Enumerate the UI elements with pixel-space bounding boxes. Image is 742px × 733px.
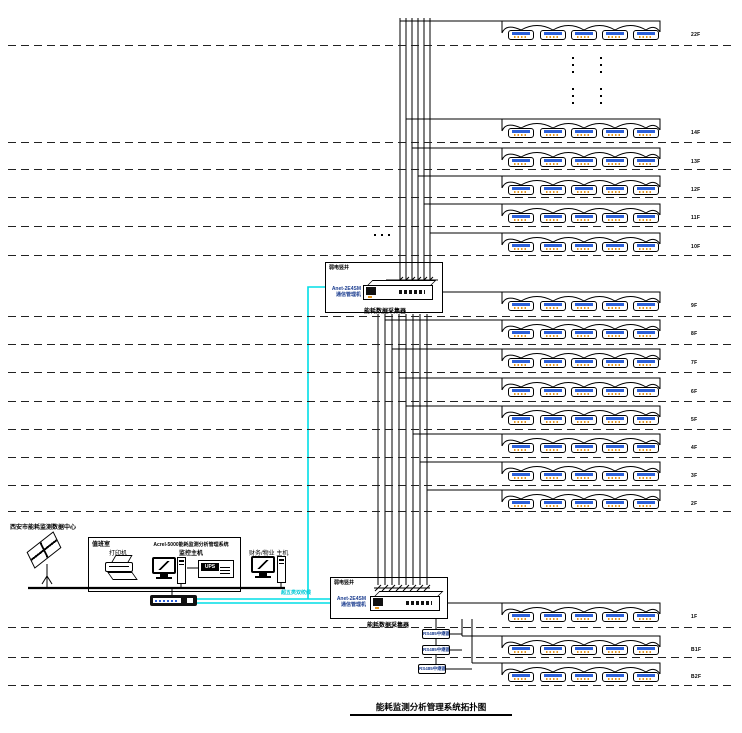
- meter-display: [575, 303, 593, 306]
- energy-meter-icon: [602, 213, 628, 223]
- meter-display: [637, 32, 655, 35]
- energy-meter-icon: [602, 672, 628, 682]
- meter-display: [637, 159, 655, 162]
- meter-buttons: [608, 421, 622, 423]
- omitted-floors-dots: [600, 88, 602, 104]
- floor-separator: [8, 142, 735, 143]
- energy-meter-icon: [633, 329, 659, 339]
- diagram-title: 能耗监测分析管理系统拓扑图: [350, 701, 512, 716]
- ups-icon: UPS: [198, 560, 234, 578]
- meter-buttons: [546, 134, 560, 136]
- energy-meter-icon: [540, 213, 566, 223]
- floor-label: 11F: [691, 215, 700, 221]
- meter-buttons: [608, 364, 622, 366]
- energy-meter-icon: [508, 612, 534, 622]
- energy-meter-icon: [633, 499, 659, 509]
- floor-separator: [8, 226, 735, 227]
- meter-buttons: [577, 191, 591, 193]
- meter-buttons: [608, 678, 622, 680]
- floor-label: 5F: [691, 417, 697, 423]
- device-type: 通信管理机: [336, 292, 361, 298]
- energy-meter-icon: [571, 301, 597, 311]
- meter-buttons: [577, 421, 591, 423]
- energy-meter-icon: [633, 185, 659, 195]
- finance-host-tower-icon: [277, 556, 286, 583]
- meter-display: [637, 360, 655, 363]
- energy-meter-icon: [540, 471, 566, 481]
- meter-buttons: [639, 307, 653, 309]
- printer-body: [105, 562, 133, 572]
- energy-meter-icon: [571, 358, 597, 368]
- monitor-base: [255, 576, 271, 578]
- energy-meter-icon: [508, 645, 534, 655]
- meter-display: [575, 130, 593, 133]
- meter-buttons: [639, 421, 653, 423]
- meter-display: [606, 187, 624, 190]
- meter-display: [512, 360, 530, 363]
- meter-buttons: [577, 134, 591, 136]
- meter-buttons: [546, 477, 560, 479]
- meter-buttons: [546, 307, 560, 309]
- meter-display: [575, 331, 593, 334]
- meter-display: [575, 473, 593, 476]
- upper-collector-room-label: 弱电竖井: [329, 264, 349, 271]
- meter-display: [637, 445, 655, 448]
- meter-buttons: [639, 364, 653, 366]
- meter-display: [575, 244, 593, 247]
- energy-meter-icon: [633, 157, 659, 167]
- energy-meter-icon: [508, 415, 534, 425]
- meter-display: [606, 445, 624, 448]
- energy-meter-icon: [540, 612, 566, 622]
- energy-meter-icon: [633, 301, 659, 311]
- meter-buttons: [514, 364, 528, 366]
- floor-separator: [8, 657, 735, 658]
- meter-display: [637, 244, 655, 247]
- floor-label: 14F: [691, 130, 701, 136]
- floor-separator: [8, 485, 735, 486]
- topology-diagram: 弱电竖井 Anet-2E4SM 通信管理机 能耗数据采集器 西安市能耗监测数据中…: [0, 0, 742, 733]
- meter-buttons: [514, 191, 528, 193]
- meter-display: [544, 215, 562, 218]
- meter-buttons: [577, 393, 591, 395]
- energy-meter-icon: [633, 645, 659, 655]
- energy-meter-icon: [571, 157, 597, 167]
- meter-buttons: [514, 219, 528, 221]
- meter-buttons: [546, 163, 560, 165]
- meter-display: [606, 360, 624, 363]
- meter-buttons: [514, 449, 528, 451]
- energy-meter-icon: [633, 443, 659, 453]
- floor-label: 3F: [691, 473, 697, 479]
- meter-buttons: [577, 248, 591, 250]
- floor-label: B2F: [691, 674, 701, 680]
- meter-display: [606, 473, 624, 476]
- gateway-led: [375, 607, 379, 609]
- meter-buttons: [639, 449, 653, 451]
- energy-meter-icon: [602, 185, 628, 195]
- meter-display: [575, 215, 593, 218]
- meter-buttons: [546, 505, 560, 507]
- energy-meter-icon: [602, 30, 628, 40]
- device-type: 通信管理机: [341, 602, 366, 608]
- energy-meter-icon: [540, 387, 566, 397]
- upper-collector-caption: 能耗数据采集器: [343, 306, 427, 315]
- meter-display: [512, 244, 530, 247]
- meter-display: [637, 331, 655, 334]
- meter-buttons: [608, 618, 622, 620]
- meter-display: [512, 614, 530, 617]
- floor-separator: [8, 197, 735, 198]
- energy-meter-icon: [633, 387, 659, 397]
- energy-meter-icon: [508, 672, 534, 682]
- meter-buttons: [514, 36, 528, 38]
- floor-separator: [8, 316, 735, 317]
- energy-meter-icon: [571, 242, 597, 252]
- energy-meter-icon: [540, 415, 566, 425]
- lower-collector-room-label: 弱电竖井: [334, 579, 354, 586]
- meter-display: [606, 32, 624, 35]
- meter-buttons: [577, 36, 591, 38]
- energy-meter-icon: [571, 185, 597, 195]
- ethernet-switch-icon: [150, 595, 197, 606]
- meter-display: [512, 389, 530, 392]
- floor-separator: [8, 511, 735, 512]
- meter-display: [512, 445, 530, 448]
- meter-buttons: [514, 134, 528, 136]
- meter-buttons: [514, 307, 528, 309]
- energy-meter-icon: [540, 30, 566, 40]
- energy-meter-icon: [508, 329, 534, 339]
- meter-display: [512, 473, 530, 476]
- energy-meter-icon: [633, 128, 659, 138]
- monitoring-host-monitor-icon: [152, 557, 176, 574]
- floor-separator: [8, 685, 735, 686]
- energy-meter-icon: [633, 242, 659, 252]
- energy-meter-icon: [508, 213, 534, 223]
- meter-display: [544, 331, 562, 334]
- meter-buttons: [546, 618, 560, 620]
- meter-buttons: [608, 248, 622, 250]
- upper-collector-device-label: Anet-2E4SM 通信管理机: [325, 286, 361, 298]
- floor-separator: [8, 457, 735, 458]
- floor-label: 22F: [691, 32, 701, 38]
- floor-separator: [8, 627, 735, 628]
- gateway-led: [368, 296, 372, 298]
- meter-display: [544, 674, 562, 677]
- floor-label: 10F: [691, 244, 701, 250]
- omitted-floors-dots: [572, 88, 574, 104]
- meter-display: [544, 130, 562, 133]
- meter-display: [512, 331, 530, 334]
- meter-display: [606, 614, 624, 617]
- energy-meter-icon: [571, 213, 597, 223]
- meter-display: [544, 360, 562, 363]
- meter-display: [575, 614, 593, 617]
- meter-buttons: [546, 421, 560, 423]
- meter-buttons: [546, 191, 560, 193]
- meter-display: [606, 159, 624, 162]
- switch-uplink: [187, 598, 193, 603]
- energy-meter-icon: [602, 301, 628, 311]
- gateway-display: [366, 287, 376, 295]
- meter-display: [575, 389, 593, 392]
- meter-buttons: [577, 618, 591, 620]
- meter-display: [512, 501, 530, 504]
- floor-label: 6F: [691, 389, 697, 395]
- energy-meter-icon: [633, 30, 659, 40]
- meter-buttons: [546, 393, 560, 395]
- meter-display: [637, 389, 655, 392]
- meter-buttons: [639, 651, 653, 653]
- energy-meter-icon: [540, 329, 566, 339]
- energy-meter-icon: [602, 387, 628, 397]
- meter-buttons: [639, 618, 653, 620]
- energy-meter-icon: [571, 387, 597, 397]
- meter-display: [637, 303, 655, 306]
- meter-display: [606, 130, 624, 133]
- network-cable-label: 超五类双绞线: [281, 589, 311, 596]
- meter-display: [512, 674, 530, 677]
- meter-buttons: [608, 477, 622, 479]
- ups-label: UPS: [201, 563, 219, 571]
- floor-label: B1F: [691, 647, 701, 653]
- meter-buttons: [608, 163, 622, 165]
- meter-display: [544, 389, 562, 392]
- meter-buttons: [546, 651, 560, 653]
- floor-separator: [8, 45, 735, 46]
- energy-meter-icon: [602, 612, 628, 622]
- floor-separator: [8, 429, 735, 430]
- meter-display: [512, 647, 530, 650]
- omitted-floors-dots: [600, 57, 602, 73]
- meter-display: [637, 187, 655, 190]
- meter-buttons: [639, 134, 653, 136]
- meter-display: [637, 417, 655, 420]
- meter-display: [544, 303, 562, 306]
- switch-ports: [153, 598, 181, 603]
- meter-buttons: [608, 307, 622, 309]
- meter-display: [606, 389, 624, 392]
- energy-meter-icon: [571, 443, 597, 453]
- meter-buttons: [608, 134, 622, 136]
- energy-meter-icon: [633, 213, 659, 223]
- meter-display: [544, 159, 562, 162]
- floor-label: 1F: [691, 614, 697, 620]
- meter-buttons: [546, 678, 560, 680]
- meter-buttons: [514, 421, 528, 423]
- meter-display: [544, 501, 562, 504]
- meter-display: [637, 215, 655, 218]
- meter-display: [575, 674, 593, 677]
- floor-label: 13F: [691, 159, 701, 165]
- meter-display: [606, 331, 624, 334]
- energy-meter-icon: [571, 128, 597, 138]
- meter-buttons: [639, 335, 653, 337]
- meter-buttons: [514, 651, 528, 653]
- meter-display: [606, 244, 624, 247]
- meter-buttons: [514, 248, 528, 250]
- meter-display: [637, 130, 655, 133]
- meter-buttons: [514, 505, 528, 507]
- energy-meter-icon: [508, 128, 534, 138]
- energy-meter-icon: [508, 185, 534, 195]
- floor-label: 12F: [691, 187, 701, 193]
- energy-meter-icon: [602, 157, 628, 167]
- meter-buttons: [514, 678, 528, 680]
- gateway-display: [373, 598, 383, 606]
- energy-meter-icon: [540, 185, 566, 195]
- floor-separator: [8, 169, 735, 170]
- meter-display: [606, 647, 624, 650]
- energy-meter-icon: [602, 415, 628, 425]
- meter-buttons: [577, 651, 591, 653]
- floor-separator: [8, 255, 735, 256]
- meter-display: [575, 32, 593, 35]
- meter-display: [512, 32, 530, 35]
- meter-display: [512, 159, 530, 162]
- energy-meter-icon: [633, 612, 659, 622]
- meter-display: [544, 647, 562, 650]
- energy-meter-icon: [540, 672, 566, 682]
- gateway-ports: [406, 601, 432, 605]
- meter-display: [575, 360, 593, 363]
- meter-buttons: [639, 477, 653, 479]
- omitted-floors-dots: [572, 57, 574, 73]
- printer-tray: [107, 572, 138, 580]
- meter-buttons: [514, 335, 528, 337]
- data-gateway-icon: [363, 285, 433, 300]
- rs485-repeater: RS485中继器: [422, 629, 450, 639]
- meter-display: [575, 647, 593, 650]
- energy-meter-icon: [571, 499, 597, 509]
- rs485-repeater: RS485中继器: [422, 645, 450, 655]
- meter-display: [512, 303, 530, 306]
- gateway-ports: [399, 290, 425, 294]
- energy-meter-icon: [602, 443, 628, 453]
- energy-meter-icon: [571, 645, 597, 655]
- meter-display: [544, 445, 562, 448]
- energy-meter-icon: [571, 471, 597, 481]
- energy-meter-icon: [633, 415, 659, 425]
- omitted-risers-dots: [374, 234, 390, 236]
- energy-meter-icon: [508, 30, 534, 40]
- meter-display: [606, 501, 624, 504]
- energy-meter-icon: [571, 415, 597, 425]
- floor-label: 9F: [691, 303, 697, 309]
- energy-meter-icon: [602, 329, 628, 339]
- energy-meter-icon: [602, 471, 628, 481]
- meter-buttons: [639, 678, 653, 680]
- energy-meter-icon: [571, 672, 597, 682]
- energy-meter-icon: [508, 358, 534, 368]
- meter-buttons: [546, 364, 560, 366]
- meter-display: [544, 187, 562, 190]
- energy-meter-icon: [633, 471, 659, 481]
- energy-meter-icon: [540, 242, 566, 252]
- city-data-center-label: 西安市能耗监测数据中心: [10, 522, 76, 531]
- energy-meter-icon: [602, 499, 628, 509]
- meter-buttons: [514, 163, 528, 165]
- meter-display: [512, 417, 530, 420]
- meter-buttons: [639, 36, 653, 38]
- meter-buttons: [577, 364, 591, 366]
- meter-buttons: [608, 191, 622, 193]
- printer-icon: [103, 555, 137, 582]
- floor-separator: [8, 344, 735, 345]
- meter-display: [606, 215, 624, 218]
- meter-display: [575, 417, 593, 420]
- meter-buttons: [608, 651, 622, 653]
- meter-buttons: [577, 335, 591, 337]
- meter-buttons: [546, 219, 560, 221]
- duty-room-label: 值班室: [92, 539, 110, 548]
- meter-display: [512, 187, 530, 190]
- meter-display: [606, 674, 624, 677]
- energy-meter-icon: [508, 301, 534, 311]
- energy-meter-icon: [540, 157, 566, 167]
- meter-buttons: [577, 678, 591, 680]
- energy-meter-icon: [540, 128, 566, 138]
- meter-buttons: [577, 477, 591, 479]
- meter-display: [637, 614, 655, 617]
- meter-buttons: [546, 36, 560, 38]
- floor-label: 2F: [691, 501, 697, 507]
- energy-meter-icon: [571, 612, 597, 622]
- meter-display: [606, 303, 624, 306]
- meter-buttons: [639, 163, 653, 165]
- energy-meter-icon: [571, 329, 597, 339]
- lower-collector-device-label: Anet-2E4SM 通信管理机: [330, 596, 366, 608]
- energy-meter-icon: [602, 128, 628, 138]
- meter-display: [575, 159, 593, 162]
- monitoring-host-tower-icon: [177, 557, 186, 584]
- floor-label: 7F: [691, 360, 697, 366]
- meter-buttons: [577, 219, 591, 221]
- energy-meter-icon: [540, 645, 566, 655]
- meter-display: [544, 614, 562, 617]
- meter-display: [575, 445, 593, 448]
- meter-buttons: [639, 248, 653, 250]
- energy-meter-icon: [602, 358, 628, 368]
- meter-buttons: [546, 335, 560, 337]
- meter-buttons: [546, 449, 560, 451]
- energy-meter-icon: [508, 471, 534, 481]
- floor-separator: [8, 372, 735, 373]
- meter-buttons: [639, 393, 653, 395]
- energy-meter-icon: [540, 358, 566, 368]
- data-gateway-icon: [370, 596, 440, 611]
- meter-buttons: [514, 393, 528, 395]
- meter-display: [637, 674, 655, 677]
- meter-display: [637, 501, 655, 504]
- energy-meter-icon: [540, 499, 566, 509]
- energy-meter-icon: [602, 645, 628, 655]
- finance-host-monitor-icon: [251, 556, 275, 573]
- meter-buttons: [608, 36, 622, 38]
- meter-display: [637, 473, 655, 476]
- energy-meter-icon: [633, 358, 659, 368]
- meter-display: [544, 473, 562, 476]
- meter-display: [575, 501, 593, 504]
- meter-display: [544, 417, 562, 420]
- energy-meter-icon: [508, 242, 534, 252]
- energy-meter-icon: [571, 30, 597, 40]
- floor-label: 4F: [691, 445, 697, 451]
- energy-meter-icon: [508, 157, 534, 167]
- meter-buttons: [514, 618, 528, 620]
- meter-buttons: [514, 477, 528, 479]
